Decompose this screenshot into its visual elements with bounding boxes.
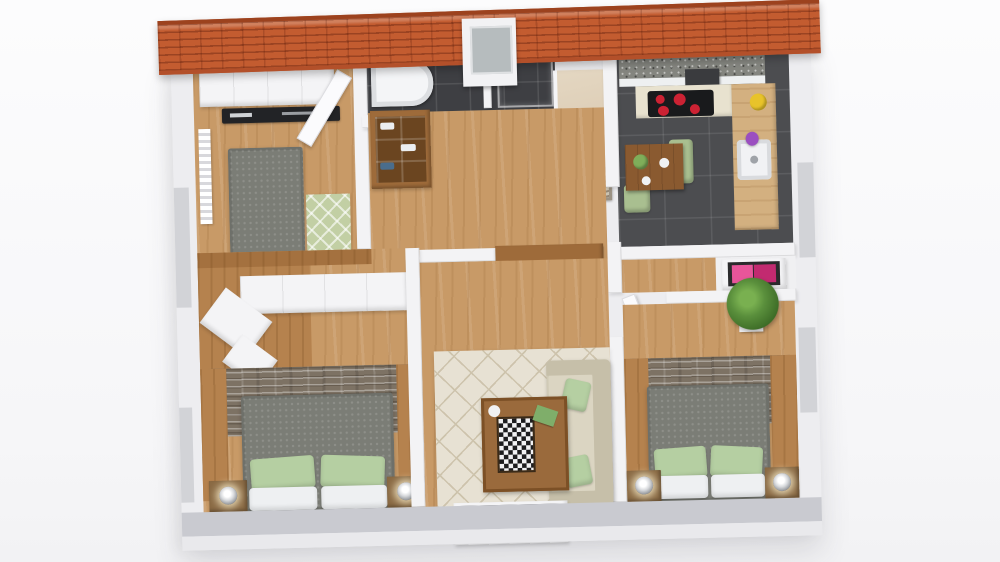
skylight-window xyxy=(462,17,518,86)
table-cup xyxy=(488,405,500,417)
floor-plan-3d xyxy=(0,0,1000,562)
lamp-left-a xyxy=(219,486,237,504)
table-book xyxy=(532,405,558,427)
wardrobe-straight xyxy=(240,272,409,314)
plate-2 xyxy=(642,176,651,185)
nightstand-left-a xyxy=(209,480,248,512)
skylight-glass xyxy=(470,26,513,75)
window-left-lower xyxy=(179,407,194,502)
landing-strip xyxy=(622,258,717,293)
dining-table xyxy=(625,143,684,190)
shelf-linen-1 xyxy=(380,122,394,129)
salad-bowl xyxy=(633,154,648,169)
pillow-white-right-2 xyxy=(711,473,766,497)
coffee-table xyxy=(481,396,569,492)
radiator-bedroom xyxy=(198,129,212,224)
nightstand-right-b xyxy=(765,467,800,499)
pillow-white-left-2 xyxy=(321,485,388,510)
burner-1 xyxy=(656,95,665,104)
shelf-linen-2 xyxy=(401,144,416,151)
pillow-green-left-2 xyxy=(320,455,385,489)
hall-shelf xyxy=(370,110,432,189)
cooktop xyxy=(647,90,714,118)
burner-2 xyxy=(674,93,686,105)
floor-slab xyxy=(171,42,823,550)
lamp-right-b xyxy=(773,473,791,491)
sofa-backrest xyxy=(592,363,613,501)
burner-3 xyxy=(658,106,669,116)
pillow-white-left-1 xyxy=(249,486,318,511)
shelf-box-blue xyxy=(380,162,394,169)
plate-1 xyxy=(659,158,669,168)
chessboard xyxy=(496,416,535,473)
burner-4 xyxy=(690,104,700,114)
window-right-upper xyxy=(797,162,815,257)
lamp-right-a xyxy=(635,476,653,494)
tv-screen-glint xyxy=(230,113,252,118)
building xyxy=(162,0,831,556)
nightstand-right-a xyxy=(627,470,662,502)
window-left-upper xyxy=(174,187,192,307)
faucet xyxy=(750,156,758,164)
window-right-lower xyxy=(798,327,817,412)
wall-hall-kitchen-mid xyxy=(607,242,622,293)
